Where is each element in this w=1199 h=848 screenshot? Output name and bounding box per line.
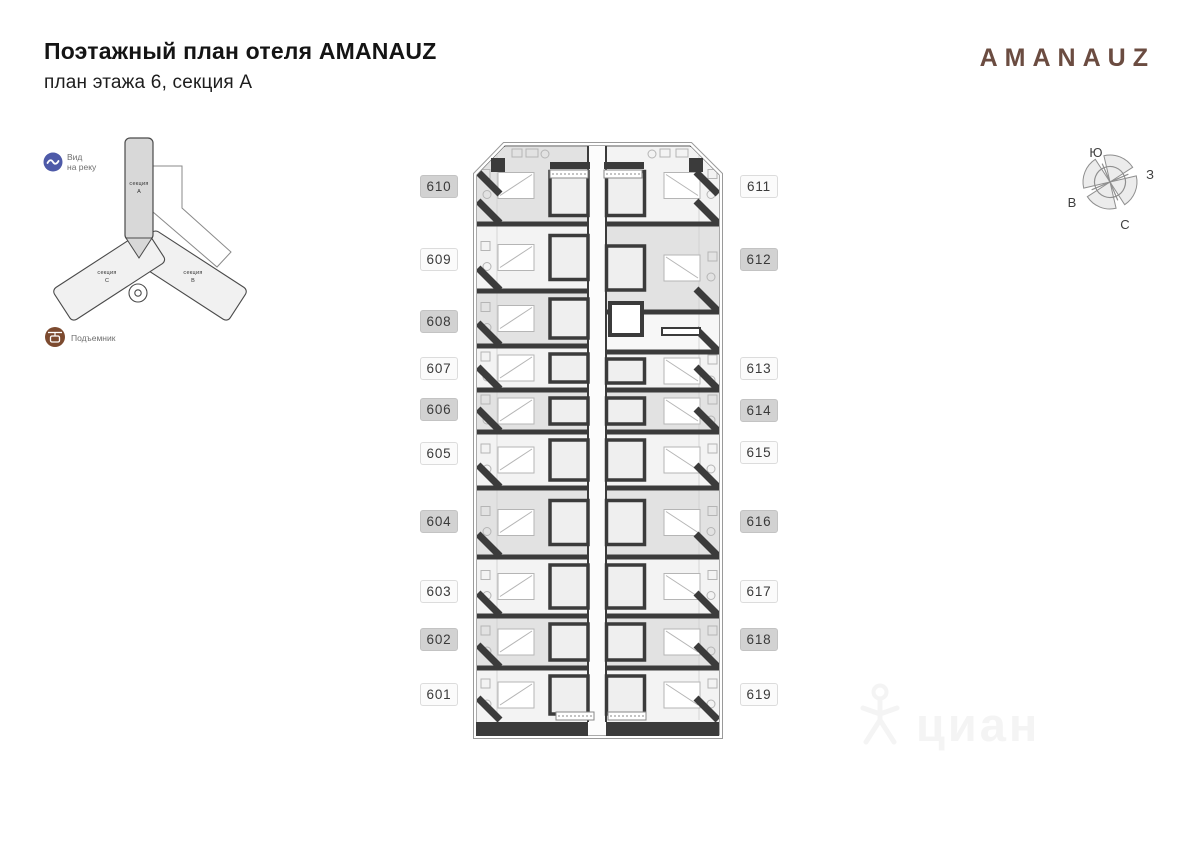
- compass-letter-east: В: [1068, 195, 1077, 210]
- river-view-label-2: на реку: [67, 162, 97, 172]
- compass-letter-south: Ю: [1089, 145, 1102, 160]
- lift-legend: Подъемник: [45, 327, 116, 347]
- title-block: Поэтажный план отеля AMANAUZ план этажа …: [44, 38, 437, 94]
- room-chip-609: 609: [420, 248, 458, 271]
- cian-watermark: циан: [856, 682, 1040, 748]
- section-b-label-1: секция: [183, 270, 202, 276]
- cian-logo-text: циан: [916, 701, 1040, 748]
- poster-canvas: Поэтажный план отеля AMANAUZ план этажа …: [0, 0, 1199, 848]
- room-chip-603: 603: [420, 580, 458, 603]
- room-chip-606: 606: [420, 398, 458, 421]
- room-chip-612: 612: [740, 248, 778, 271]
- compass-letter-north: С: [1120, 217, 1129, 232]
- section-c-label-2: С: [105, 278, 109, 284]
- section-a-label-2: А: [137, 189, 141, 195]
- room-chip-614: 614: [740, 399, 778, 422]
- room-chip-608: 608: [420, 310, 458, 333]
- section-b-label-2: В: [191, 278, 195, 284]
- section-a-label-1: секция: [129, 181, 148, 187]
- room-chip-619: 619: [740, 683, 778, 706]
- compass-letter-west: З: [1146, 167, 1154, 182]
- room-chip-616: 616: [740, 510, 778, 533]
- floor-plan: [465, 138, 735, 748]
- room-chip-602: 602: [420, 628, 458, 651]
- page-title: Поэтажный план отеля AMANAUZ: [44, 38, 437, 65]
- brand-logo: AMANAUZ: [980, 44, 1155, 73]
- river-view-legend: Вид на реку: [44, 152, 98, 172]
- room-chip-618: 618: [740, 628, 778, 651]
- room-chip-607: 607: [420, 357, 458, 380]
- compass-rose: Ю З В С: [1062, 132, 1172, 242]
- building-overview-map: Вид на реку секция А секция С секция В: [35, 130, 270, 360]
- room-chip-611: 611: [740, 175, 778, 198]
- room-chip-615: 615: [740, 441, 778, 464]
- room-chip-601: 601: [420, 683, 458, 706]
- gondola-icon: [45, 327, 65, 347]
- lift-label: Подъемник: [71, 333, 116, 343]
- page-subtitle: план этажа 6, секция А: [44, 72, 437, 94]
- person-icon: [856, 682, 904, 748]
- lift-pin-inner: [135, 290, 141, 296]
- room-chip-617: 617: [740, 580, 778, 603]
- room-chip-613: 613: [740, 357, 778, 380]
- room-chip-610: 610: [420, 175, 458, 198]
- river-view-label-1: Вид: [67, 152, 82, 162]
- room-chip-605: 605: [420, 442, 458, 465]
- section-c-label-1: секция: [97, 270, 116, 276]
- room-chip-604: 604: [420, 510, 458, 533]
